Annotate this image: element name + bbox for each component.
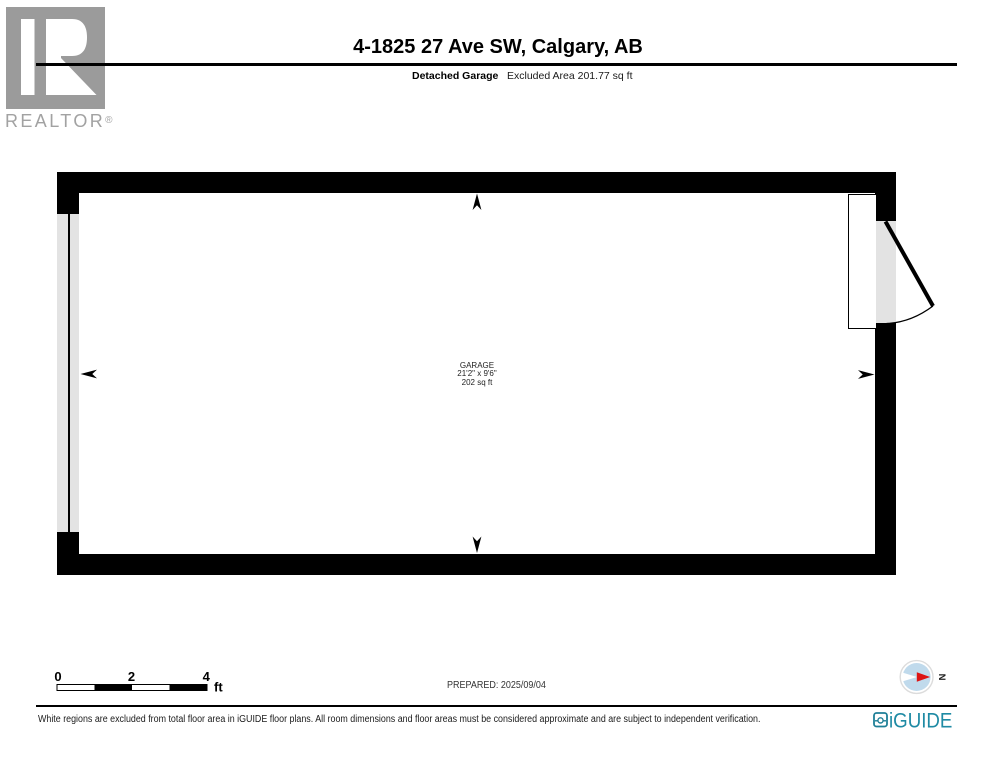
svg-text:4: 4	[203, 669, 211, 684]
svg-text:iGUIDE: iGUIDE	[889, 709, 952, 732]
svg-text:N: N	[936, 674, 947, 681]
svg-text:ft: ft	[214, 680, 223, 695]
svg-text:2: 2	[128, 669, 135, 684]
svg-text:0: 0	[54, 669, 61, 684]
